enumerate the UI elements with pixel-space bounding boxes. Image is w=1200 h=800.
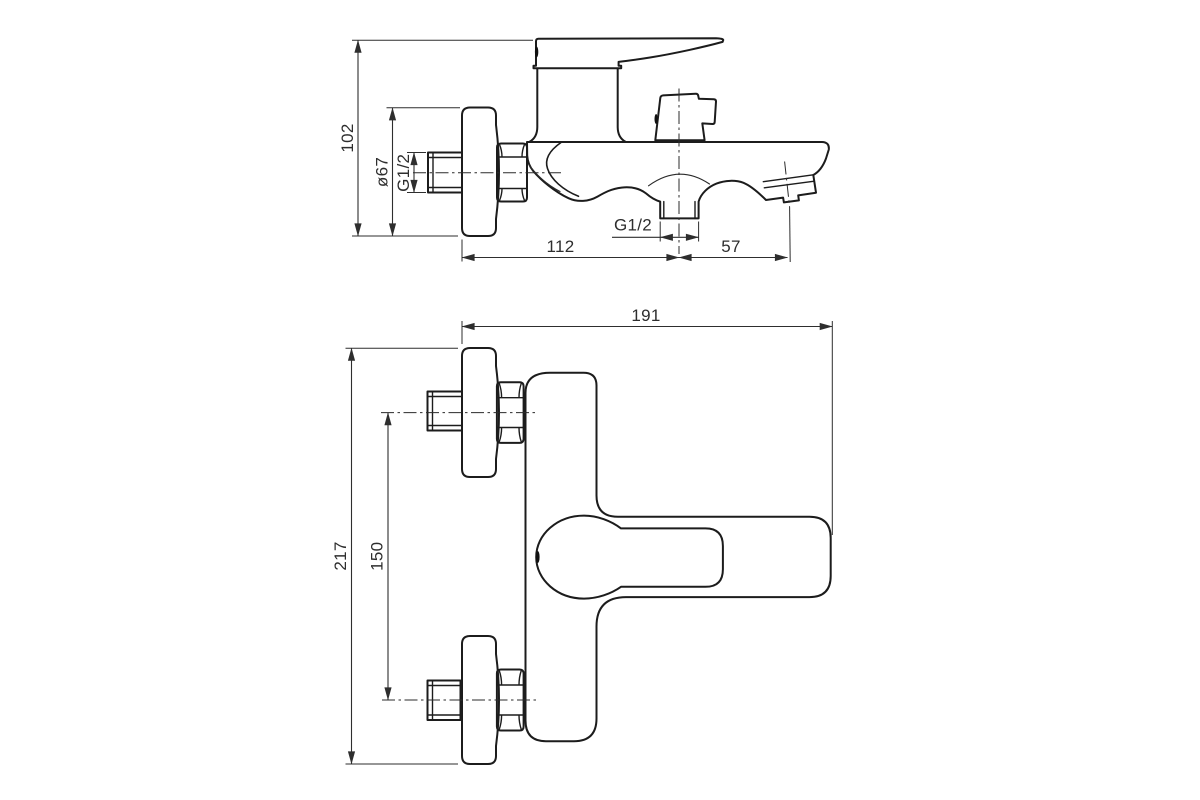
side-body [527, 142, 829, 218]
dim-label: 217 [331, 541, 350, 570]
side-inlet-connector [428, 108, 527, 237]
lever-notch [535, 47, 538, 58]
side-diverter-knob [655, 94, 717, 141]
plan-body-outline [526, 373, 831, 742]
side-view: 102 ø67 G1/2 112 57 [338, 38, 829, 262]
dim-label: ø67 [373, 157, 392, 187]
side-handle-assembly [530, 38, 724, 142]
dim-outlet-to-spout: 57 [679, 237, 788, 258]
cartridge-column [530, 69, 626, 142]
side-spout-extension-line [790, 207, 791, 262]
dim-inlet-spacing: 150 [368, 413, 389, 700]
top-view: 191 217 150 [331, 306, 832, 764]
dim-label: 150 [368, 542, 387, 571]
lever-handle [534, 38, 724, 68]
dim-label: G1/2 [614, 216, 652, 235]
knob-notch [655, 114, 658, 124]
dim-label: 191 [631, 306, 660, 325]
diverter-knob [655, 94, 716, 141]
lever-notch [536, 551, 540, 563]
inlet-thread-lines [428, 392, 463, 431]
dim-overall-height: 102 [338, 40, 533, 236]
lever-handle-top [536, 516, 723, 599]
dim-flange-diameter: ø67 [373, 108, 461, 236]
plan-lever-handle [536, 516, 723, 599]
dim-label: 102 [338, 123, 357, 152]
wall-flange [462, 108, 499, 237]
dim-label: 112 [546, 237, 574, 256]
body-outline [527, 142, 829, 218]
dim-label: 57 [721, 237, 741, 256]
body-neck-line [529, 165, 560, 192]
dim-overall-width: 217 [331, 348, 458, 764]
dim-wall-to-outlet: 112 [462, 237, 679, 262]
dim-label: G1/2 [394, 154, 413, 192]
faucet-dimension-drawing: 102 ø67 G1/2 112 57 [0, 0, 1200, 800]
technical-drawing-page: 102 ø67 G1/2 112 57 [0, 0, 1200, 800]
dim-overall-depth: 191 [462, 306, 832, 535]
aerator-band-lines [763, 175, 814, 188]
